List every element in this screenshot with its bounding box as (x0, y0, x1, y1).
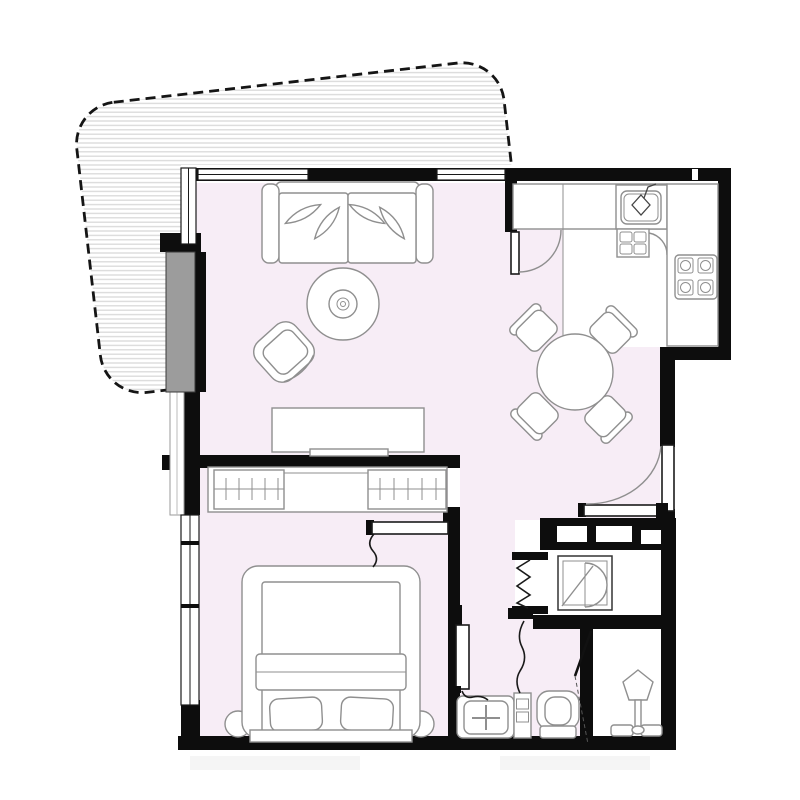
pillow (340, 697, 394, 733)
duct-vent (641, 530, 661, 544)
window-mullion (181, 604, 199, 608)
door-leaf (456, 625, 469, 689)
dishwasher (617, 229, 649, 257)
dining-table (537, 334, 613, 410)
wall-segment (183, 392, 200, 460)
wall-segment (196, 455, 460, 468)
door-leaf (372, 522, 448, 534)
wall-segment (661, 550, 676, 750)
entrance-door-jamb (662, 445, 674, 511)
sofa-seat (348, 193, 416, 263)
stove (675, 255, 717, 299)
round-rug (307, 268, 379, 340)
wardrobe (208, 467, 447, 512)
wall-segment (660, 347, 675, 447)
door-hinge-stub (448, 605, 462, 627)
wall-segment (183, 468, 200, 515)
folding-door-jamb (512, 552, 548, 560)
washbasin-vanity (457, 696, 514, 738)
washing-machine (558, 556, 612, 610)
wall-segment (718, 168, 731, 360)
window-mullion (181, 541, 199, 545)
duct-vent (557, 526, 587, 542)
wall-gap (692, 169, 698, 180)
toilet-tank (540, 726, 576, 738)
bed (225, 566, 434, 742)
door-leaf (511, 232, 519, 274)
tv-console (272, 408, 424, 456)
toilet (537, 691, 579, 738)
floor-plan-canvas: apartment floor plan drawing (0, 0, 800, 800)
print-smudge (190, 756, 360, 770)
sofa-armrest (416, 184, 433, 263)
kitchen-sink (616, 184, 667, 229)
sofa-seat (279, 193, 348, 263)
door-end-cap (454, 686, 461, 693)
pillow (269, 697, 323, 733)
door-hinge (656, 503, 668, 518)
print-smudge (500, 756, 650, 770)
wall-segment (533, 615, 661, 629)
wall-segment (181, 700, 200, 750)
floor-plan-drawing (0, 0, 800, 800)
sofa (262, 182, 433, 263)
door-jamb (508, 608, 533, 619)
sofa-armrest (262, 184, 279, 263)
door-leaf (584, 505, 662, 516)
drawer-cabinet (514, 693, 531, 738)
headboard (250, 730, 412, 742)
duct-vent (596, 526, 632, 542)
sliding-panel (166, 252, 195, 392)
